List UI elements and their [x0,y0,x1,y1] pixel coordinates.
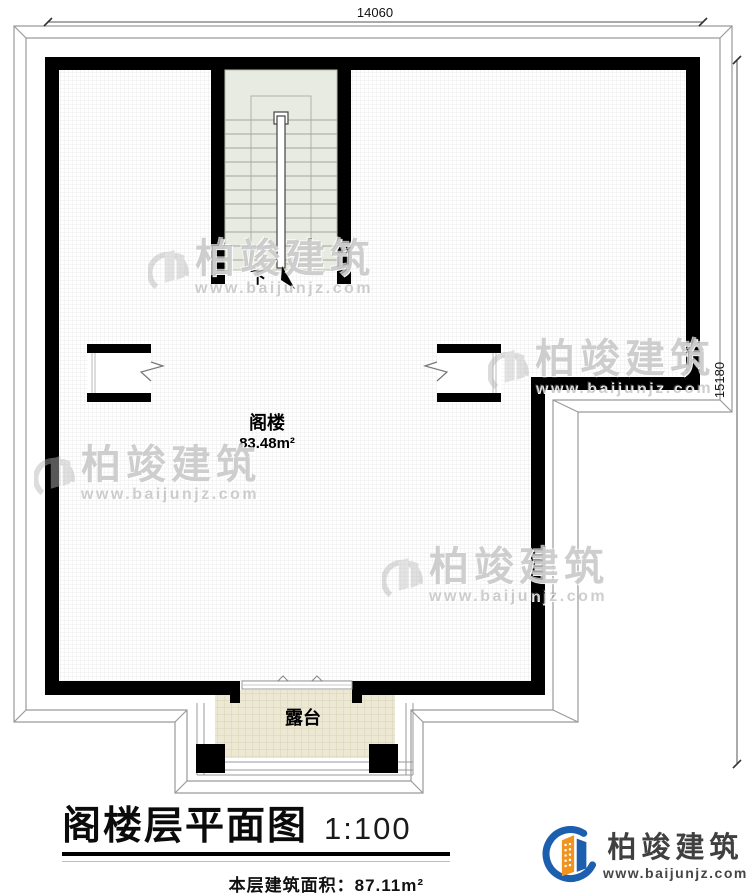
dimension-top: 14060 [44,5,707,26]
plan-scale: 1:100 [324,811,412,847]
brand-name: 柏竣建筑 [607,833,743,865]
brand-logo: 柏竣建筑 www.baijunjz.com [540,826,748,888]
dimension-top-value: 14060 [357,5,393,20]
floor-plan-page: 下 14060 15180 [0,0,750,896]
room-label-terrace: 露台 [285,707,321,728]
room-area-attic: 83.48m² [239,435,295,452]
plan-drawing: 下 14060 15180 [0,0,750,808]
plan-title: 阁楼层平面图 [62,806,308,849]
brand-logo-icon [540,826,596,888]
brand-url: www.baijunjz.com [603,865,748,881]
title-block: 阁楼层平面图 1:100 本层建筑面积：87.11m² [62,806,450,896]
stair-direction-label: 下 [250,270,266,287]
attic-floor [59,70,686,681]
floor-area-text: 本层建筑面积：87.11m² [62,871,450,896]
staircase: 下 [211,70,351,289]
title-underline-thick [62,852,450,856]
dimension-right-value: 15180 [712,362,727,398]
room-label-attic: 阁楼 [249,412,285,433]
title-underline-thin [62,861,450,862]
